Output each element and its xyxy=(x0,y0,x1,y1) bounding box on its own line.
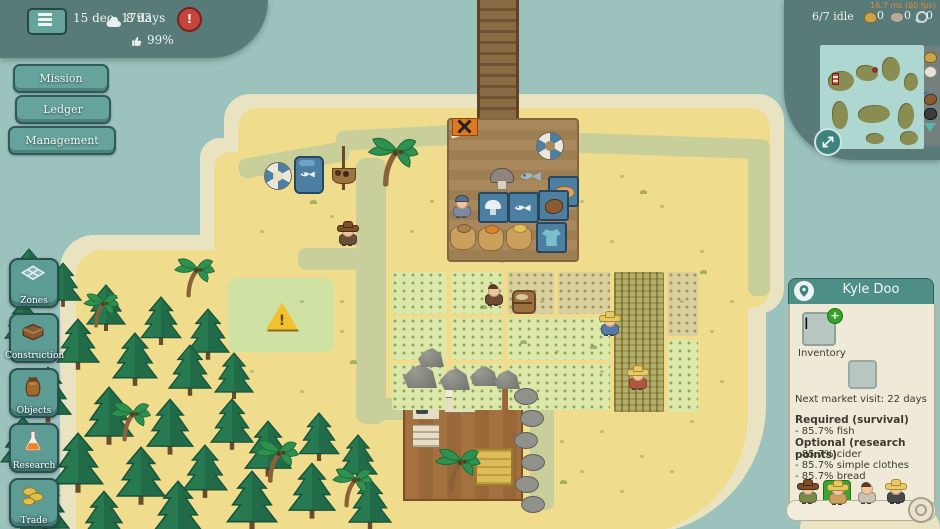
pine-tree xyxy=(152,480,204,529)
straw-hat-crown xyxy=(833,480,843,487)
fish-barrel[interactable] xyxy=(294,156,324,194)
trade-label: Trade xyxy=(5,516,63,526)
required-header: Required (survival) xyxy=(795,414,909,426)
shirt-icon xyxy=(542,229,561,246)
brown-hat-crown xyxy=(343,221,353,228)
cloud-icon xyxy=(106,13,122,32)
minimap-lighthouse-marker xyxy=(832,73,839,85)
pouch-resource-icon xyxy=(890,12,904,23)
storage-crate[interactable] xyxy=(538,190,569,221)
mushroom-sprite[interactable] xyxy=(490,168,512,188)
villager[interactable] xyxy=(798,482,816,504)
alert-button[interactable]: ! xyxy=(177,7,202,32)
palm-tree xyxy=(428,442,482,493)
stone-deposit-icon[interactable] xyxy=(924,66,937,78)
menu-icon xyxy=(38,13,52,16)
sand-speck xyxy=(700,250,704,253)
inventory-label: Inventory xyxy=(798,348,846,359)
life-ring-hole xyxy=(273,171,284,182)
stone-path xyxy=(514,388,538,405)
character-panel: Kyle Doo I + Inventory Next market visit… xyxy=(786,278,934,520)
sand-speck xyxy=(600,430,604,433)
grass-tuft xyxy=(560,480,567,484)
fish-deposit-icon[interactable] xyxy=(922,82,936,89)
add-inventory-badge[interactable]: + xyxy=(827,308,843,324)
pier xyxy=(477,0,519,132)
farm-plot[interactable] xyxy=(392,272,446,314)
coal-deposit-icon[interactable] xyxy=(924,108,937,120)
farm-plot[interactable] xyxy=(452,318,502,360)
stone-path xyxy=(521,454,545,471)
sand-speck xyxy=(340,300,344,303)
sand-speck xyxy=(410,230,414,233)
sand-speck xyxy=(500,260,504,263)
path-to-zone xyxy=(298,248,360,270)
villager[interactable] xyxy=(600,314,618,336)
storage-crate[interactable] xyxy=(508,192,539,223)
pine-tree xyxy=(80,490,128,529)
cap xyxy=(455,195,469,202)
minimap-settlement-marker xyxy=(872,67,878,73)
expand-icon xyxy=(820,134,836,150)
stone-path xyxy=(514,432,538,449)
minimap-island xyxy=(882,57,900,81)
supply-sack[interactable] xyxy=(450,226,476,250)
required-item-fish: - 85.7% fish xyxy=(795,426,855,437)
scroll-roll-center xyxy=(915,504,927,516)
villager-hair xyxy=(861,482,871,487)
flag-face xyxy=(452,118,478,136)
villager[interactable] xyxy=(484,284,502,306)
palm-tree xyxy=(168,252,216,298)
mushroom-icon-stem xyxy=(490,209,496,215)
straw-hat-crown xyxy=(891,479,901,486)
hanging-basket[interactable] xyxy=(330,146,356,190)
sand-speck xyxy=(640,455,644,458)
fish-icon xyxy=(513,203,533,213)
wheat-plot[interactable] xyxy=(558,272,610,314)
villager-hair xyxy=(488,284,498,289)
weather-days-label: 8 days xyxy=(126,11,165,25)
sack-top xyxy=(513,224,527,233)
palm-tree xyxy=(360,130,420,187)
stone-path xyxy=(521,496,545,513)
palm-tree xyxy=(326,462,374,508)
zones-button[interactable]: Zones xyxy=(9,258,59,308)
optional-item-cider: - 85.7% cider xyxy=(795,449,862,460)
barrel[interactable] xyxy=(512,290,536,314)
life-ring[interactable] xyxy=(264,162,292,190)
minimap-island xyxy=(866,133,884,144)
clay-resource-icon xyxy=(864,12,877,23)
straw-hat-crown xyxy=(605,311,615,318)
straw-hat-crown xyxy=(633,365,643,372)
palm-tree xyxy=(248,434,300,483)
dock-flag[interactable] xyxy=(449,118,477,140)
sand-speck xyxy=(730,300,734,303)
zones-icon xyxy=(19,263,47,289)
grass-tuft xyxy=(350,360,357,364)
sand-speck xyxy=(710,330,714,333)
barrel-band xyxy=(512,302,532,304)
stone-path xyxy=(520,410,544,427)
palm-tree xyxy=(104,396,152,442)
storage-crate[interactable] xyxy=(478,192,509,223)
storage-crate[interactable] xyxy=(536,222,567,253)
sand-speck xyxy=(660,205,664,208)
minimap-island xyxy=(899,130,918,146)
trade-icon xyxy=(19,483,47,509)
minimap-island xyxy=(896,102,915,130)
zones-label: Zones xyxy=(5,296,63,306)
game-window: ! 15 dec. 1793 8 days ! 99% Mission Ledg… xyxy=(0,0,940,529)
pouch-count: 0 xyxy=(904,9,911,22)
sack-top xyxy=(485,225,499,234)
sand-speck xyxy=(300,300,304,303)
farm-plot[interactable] xyxy=(508,318,610,360)
trade-button[interactable]: Trade xyxy=(9,478,59,528)
coconut xyxy=(335,170,341,176)
fish-sprite[interactable] xyxy=(518,170,544,183)
barrel-lid xyxy=(299,160,315,166)
sand-speck xyxy=(555,350,559,353)
pine-tree xyxy=(112,332,158,387)
mushroom-stem xyxy=(497,180,507,190)
sand-speck xyxy=(720,380,724,383)
sand-speck xyxy=(540,300,544,303)
grass-tuft xyxy=(640,190,647,194)
villager-tab-4[interactable] xyxy=(882,480,908,505)
construction-label: Construction xyxy=(5,351,63,361)
sand-speck xyxy=(600,370,604,373)
idle-label: 6/7 idle xyxy=(812,10,854,23)
villager[interactable] xyxy=(452,196,470,218)
menu-button[interactable] xyxy=(27,8,67,35)
sand-speck xyxy=(330,215,334,218)
coconut xyxy=(343,171,349,177)
pin-icon[interactable] xyxy=(794,281,814,301)
happiness-icon xyxy=(130,33,143,52)
sand-speck xyxy=(560,440,564,443)
supply-sack[interactable] xyxy=(478,227,504,251)
fish-icon xyxy=(299,170,317,179)
corn-plot[interactable] xyxy=(614,272,664,412)
supply-sack[interactable] xyxy=(506,226,532,250)
villager-tab-3[interactable] xyxy=(853,480,879,505)
clay-count: 0 xyxy=(877,9,884,22)
villager[interactable] xyxy=(628,368,646,390)
warning-triangle: ! xyxy=(266,302,298,330)
management-button[interactable]: Management xyxy=(8,126,116,155)
research-button[interactable]: Research xyxy=(9,423,59,473)
life-ring[interactable] xyxy=(536,132,564,160)
sand-speck xyxy=(620,490,624,493)
pine-tree xyxy=(214,352,254,400)
minimap-island xyxy=(827,69,856,92)
sand-speck xyxy=(610,240,614,243)
meat-icon xyxy=(545,199,563,214)
sand-speck xyxy=(260,230,264,233)
villager[interactable] xyxy=(338,224,356,246)
sand-speck xyxy=(580,200,584,203)
farm-plot[interactable] xyxy=(668,340,698,412)
path-main-vertical xyxy=(356,158,386,424)
sand-speck xyxy=(300,390,304,393)
brown-hat-crown xyxy=(803,479,813,486)
wheat-plot[interactable] xyxy=(668,272,698,336)
grass-tuft xyxy=(590,345,597,349)
market-visit-label: Next market visit: 22 days xyxy=(795,394,927,405)
research-icon xyxy=(19,428,47,454)
sand-speck xyxy=(580,470,584,473)
grass-tuft xyxy=(520,340,527,344)
path-right xyxy=(748,148,770,296)
mushroom-icon xyxy=(485,200,501,209)
gem-deposit-icon[interactable] xyxy=(924,123,936,132)
villager[interactable] xyxy=(857,482,875,504)
sand-speck xyxy=(670,470,674,473)
minimap-expand-button[interactable] xyxy=(814,128,842,156)
life-ring-hole xyxy=(545,141,556,152)
sand-speck xyxy=(680,300,684,303)
construction-icon xyxy=(19,318,47,344)
research-label: Research xyxy=(5,461,63,471)
optional-item-clothes: - 85.7% simple clothes xyxy=(795,460,909,471)
villager[interactable] xyxy=(828,483,846,505)
scroll-roll xyxy=(908,497,934,523)
construction-button[interactable]: Construction xyxy=(9,313,59,363)
minimap-island xyxy=(832,101,848,129)
objects-button[interactable]: Objects xyxy=(9,368,59,418)
warning-sign[interactable]: ! xyxy=(266,302,300,332)
grass-tuft xyxy=(700,270,707,274)
grass-tuft xyxy=(310,200,317,204)
minimap-island xyxy=(857,104,890,125)
sand-speck xyxy=(430,200,434,203)
perf-label: 16.7 ms (60 fps) xyxy=(870,1,936,10)
pine-tree xyxy=(168,344,212,397)
meat-deposit-icon[interactable] xyxy=(924,94,937,105)
magnifier-count: 0 xyxy=(926,9,933,22)
villager[interactable] xyxy=(886,482,904,504)
sand-speck xyxy=(690,420,694,423)
ledger-button[interactable]: Ledger xyxy=(15,95,111,124)
sand-speck xyxy=(340,330,344,333)
barrel-top xyxy=(516,294,528,300)
objects-label: Objects xyxy=(5,406,63,416)
palm-tree xyxy=(78,288,120,328)
villager-tab-1[interactable] xyxy=(794,480,820,505)
objects-icon xyxy=(19,373,47,399)
stone-path xyxy=(515,476,539,493)
pine-tree xyxy=(298,412,340,462)
sack-top xyxy=(457,224,471,233)
sand-speck xyxy=(620,175,624,178)
minimap-island xyxy=(903,72,920,92)
empty-slot[interactable] xyxy=(848,360,877,389)
clay-deposit-icon[interactable] xyxy=(924,52,937,63)
mission-button[interactable]: Mission xyxy=(13,64,109,93)
happiness-label: 99% xyxy=(147,33,174,47)
character-name: Kyle Doo xyxy=(816,282,926,297)
